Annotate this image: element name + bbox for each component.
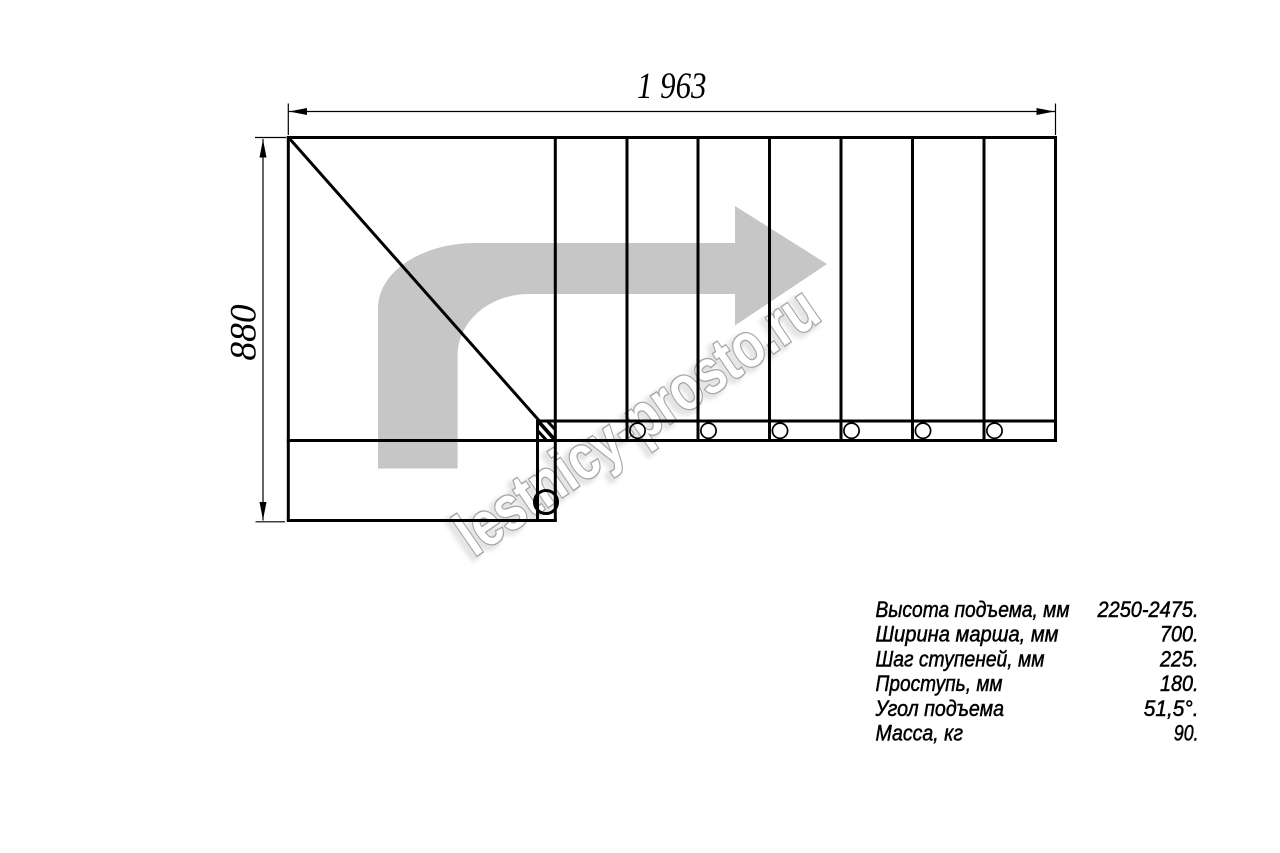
svg-text:Высота подъема, мм: Высота подъема, мм <box>876 597 1070 622</box>
svg-text:51,5°.: 51,5°. <box>1144 696 1199 721</box>
svg-text:Угол подъема: Угол подъема <box>875 696 1004 721</box>
svg-text:Масса, кг: Масса, кг <box>876 721 964 746</box>
svg-text:Шаг ступеней, мм: Шаг ступеней, мм <box>876 646 1045 671</box>
svg-text:Проступь, мм: Проступь, мм <box>876 671 1003 696</box>
svg-text:700.: 700. <box>1160 622 1199 647</box>
svg-text:880: 880 <box>224 304 265 361</box>
svg-text:1 963: 1 963 <box>637 66 707 107</box>
svg-text:180.: 180. <box>1160 671 1199 696</box>
svg-text:Ширина марша, мм: Ширина марша, мм <box>876 622 1059 647</box>
svg-text:225.: 225. <box>1159 646 1198 671</box>
svg-text:2250-2475.: 2250-2475. <box>1097 597 1199 622</box>
svg-text:90.: 90. <box>1174 721 1199 746</box>
